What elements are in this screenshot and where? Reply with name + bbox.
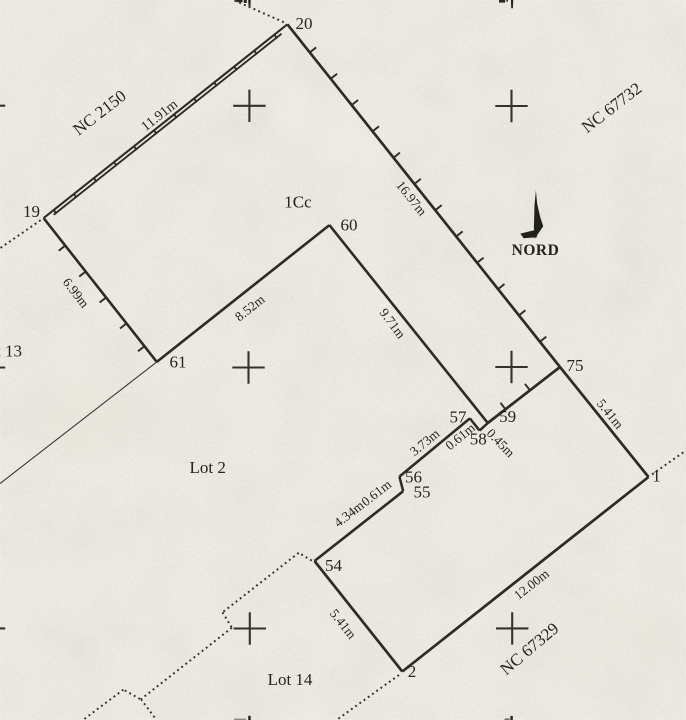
svg-text:t 13: t 13	[0, 342, 22, 361]
svg-text:19: 19	[23, 202, 40, 221]
svg-text:Lot 14: Lot 14	[268, 670, 313, 689]
svg-text:60: 60	[341, 216, 358, 235]
svg-text:2: 2	[408, 662, 417, 681]
svg-text:56: 56	[405, 468, 422, 487]
svg-text:1Cc: 1Cc	[284, 193, 312, 212]
svg-text:Lot 2: Lot 2	[190, 458, 226, 477]
svg-text:1: 1	[652, 467, 661, 486]
svg-text:61: 61	[170, 353, 187, 372]
svg-text:59: 59	[499, 407, 516, 426]
svg-text:75: 75	[567, 356, 584, 375]
svg-text:20: 20	[296, 14, 313, 33]
svg-text:NORD: NORD	[512, 242, 560, 259]
svg-text:54: 54	[325, 556, 343, 575]
